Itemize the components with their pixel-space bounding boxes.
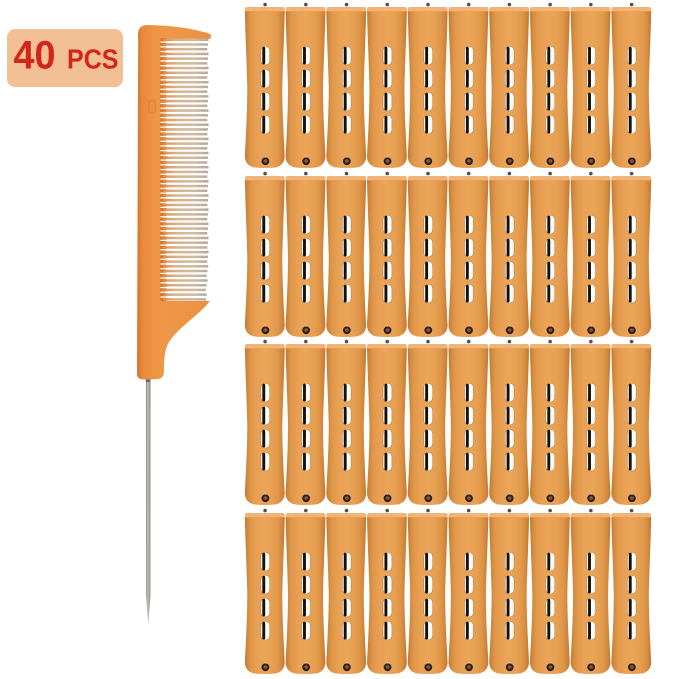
svg-text:40: 40 xyxy=(14,34,56,78)
svg-text:PCS: PCS xyxy=(67,44,119,75)
